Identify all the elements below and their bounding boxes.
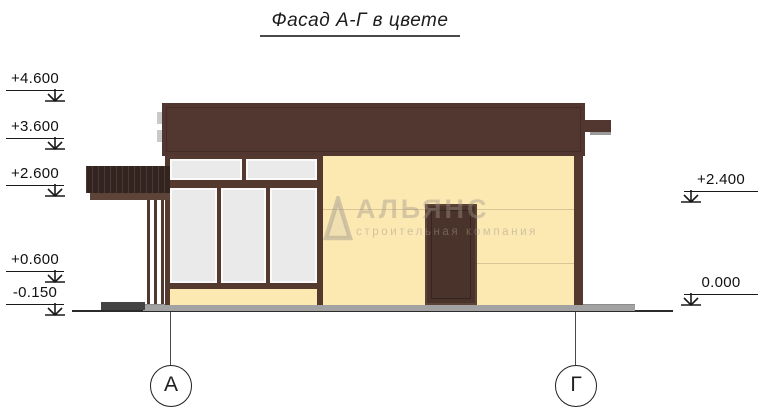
canopy-post-2	[154, 200, 157, 304]
canopy-post-3	[161, 200, 164, 304]
wall-seam-lower	[477, 263, 574, 264]
spandrel-panel	[170, 289, 317, 305]
elevation-marker-minus-0150: -0.150	[6, 284, 64, 305]
elevation-value: +4.600	[6, 70, 64, 87]
elevation-marker-4600: +4.600	[6, 70, 64, 91]
elevation-marker-3600: +3.600	[6, 118, 64, 139]
window-pane-3	[270, 188, 317, 283]
elevation-value: +0.600	[6, 251, 64, 268]
axis-bubble-g: Г	[555, 365, 597, 407]
elevation-marker-0000: 0.000	[684, 274, 758, 295]
base-plinth-strip	[143, 304, 635, 311]
elevation-marker-2600: +2.600	[6, 165, 64, 186]
storefront-frame	[165, 156, 323, 305]
elevation-arrow-icon	[680, 293, 702, 307]
window-pane-1	[170, 188, 217, 283]
elevation-value: 0.000	[684, 274, 758, 291]
window-pane-2	[221, 188, 266, 283]
roof-beam-end	[583, 120, 611, 132]
elevation-value: +2.600	[6, 165, 64, 182]
elevation-marker-2400: +2.400	[684, 171, 758, 192]
transom-window-2	[246, 159, 317, 180]
axis-label-g: Г	[570, 373, 581, 396]
axis-line-g	[575, 312, 576, 365]
page-title: Фасад А-Г в цвете	[230, 10, 490, 37]
elevation-arrow-icon	[680, 190, 702, 204]
entrance-door	[425, 204, 477, 305]
roof-fascia	[162, 103, 585, 156]
canopy-awning	[86, 166, 170, 193]
elevation-value: -0.150	[6, 284, 64, 301]
elevation-value: +3.600	[6, 118, 64, 135]
roof-bracket-top	[157, 112, 162, 124]
elevation-arrow-icon	[44, 184, 66, 198]
elevation-arrow-icon	[44, 89, 66, 103]
elevation-arrow-icon	[44, 303, 66, 317]
elevation-value: +2.400	[684, 171, 758, 188]
wall-corner-trim	[574, 156, 583, 305]
roof-beam-shadow	[590, 132, 611, 135]
canopy-fascia	[90, 193, 170, 200]
page-title-text: Фасад А-Г в цвете	[260, 10, 461, 37]
entrance-platform	[101, 302, 145, 310]
transom-window-1	[170, 159, 242, 180]
axis-label-a: А	[164, 373, 178, 396]
canopy-post-1	[147, 200, 150, 304]
axis-line-a	[170, 312, 171, 365]
roof-bracket-bottom	[157, 130, 162, 142]
facade-drawing-canvas: Фасад А-Г в цвете АЛЬЯНС строительная ко…	[0, 0, 759, 418]
elevation-arrow-icon	[44, 270, 66, 284]
axis-bubble-a: А	[150, 365, 192, 407]
elevation-arrow-icon	[44, 137, 66, 151]
elevation-marker-0600: +0.600	[6, 251, 64, 272]
